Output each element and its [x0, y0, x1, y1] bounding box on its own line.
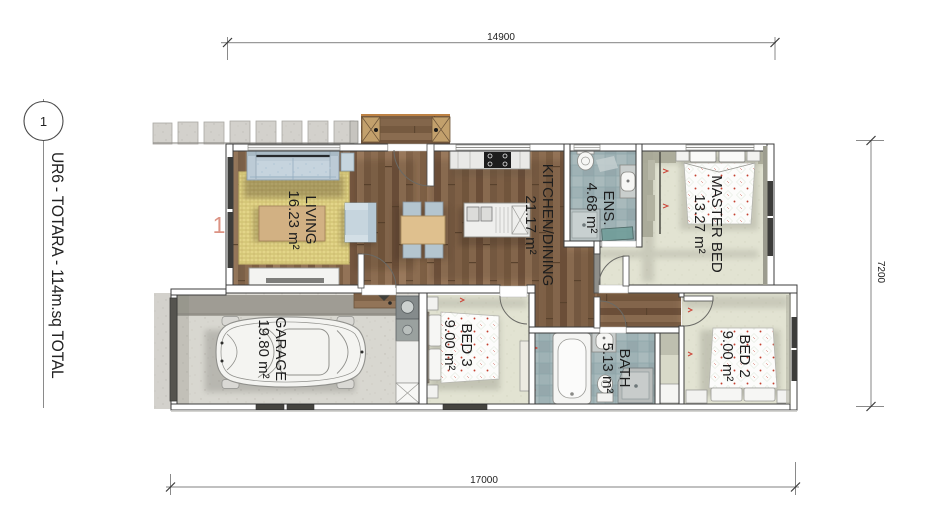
svg-text:KITCHEN/DINING: KITCHEN/DINING	[539, 164, 556, 287]
svg-text:ENS.: ENS.	[600, 190, 617, 225]
svg-text:4.68 m²: 4.68 m²	[583, 183, 600, 234]
svg-text:9.00 m²: 9.00 m²	[441, 320, 458, 371]
svg-text:9.00 m²: 9.00 m²	[719, 331, 736, 382]
svg-text:7200: 7200	[875, 261, 886, 284]
svg-text:UR6 - TOTARA - 114m.sq TOTAL: UR6 - TOTARA - 114m.sq TOTAL	[48, 152, 67, 379]
svg-text:16.23 m²: 16.23 m²	[285, 190, 302, 249]
svg-text:LIVING: LIVING	[302, 195, 319, 244]
svg-text:1: 1	[213, 212, 226, 238]
svg-text:14900: 14900	[487, 32, 515, 43]
svg-text:17000: 17000	[470, 475, 498, 486]
svg-text:GARAGE: GARAGE	[272, 317, 289, 381]
svg-text:BED 3: BED 3	[458, 323, 475, 366]
svg-text:MASTER BED: MASTER BED	[708, 175, 725, 273]
svg-text:BATH: BATH	[616, 349, 633, 388]
svg-text:BED 2: BED 2	[736, 334, 753, 377]
svg-text:13.27 m²: 13.27 m²	[691, 194, 708, 253]
svg-text:19.80 m²: 19.80 m²	[255, 319, 272, 378]
svg-text:1: 1	[40, 114, 47, 129]
svg-text:5.13 m²: 5.13 m²	[599, 343, 616, 394]
svg-text:21.17 m²: 21.17 m²	[522, 195, 539, 254]
